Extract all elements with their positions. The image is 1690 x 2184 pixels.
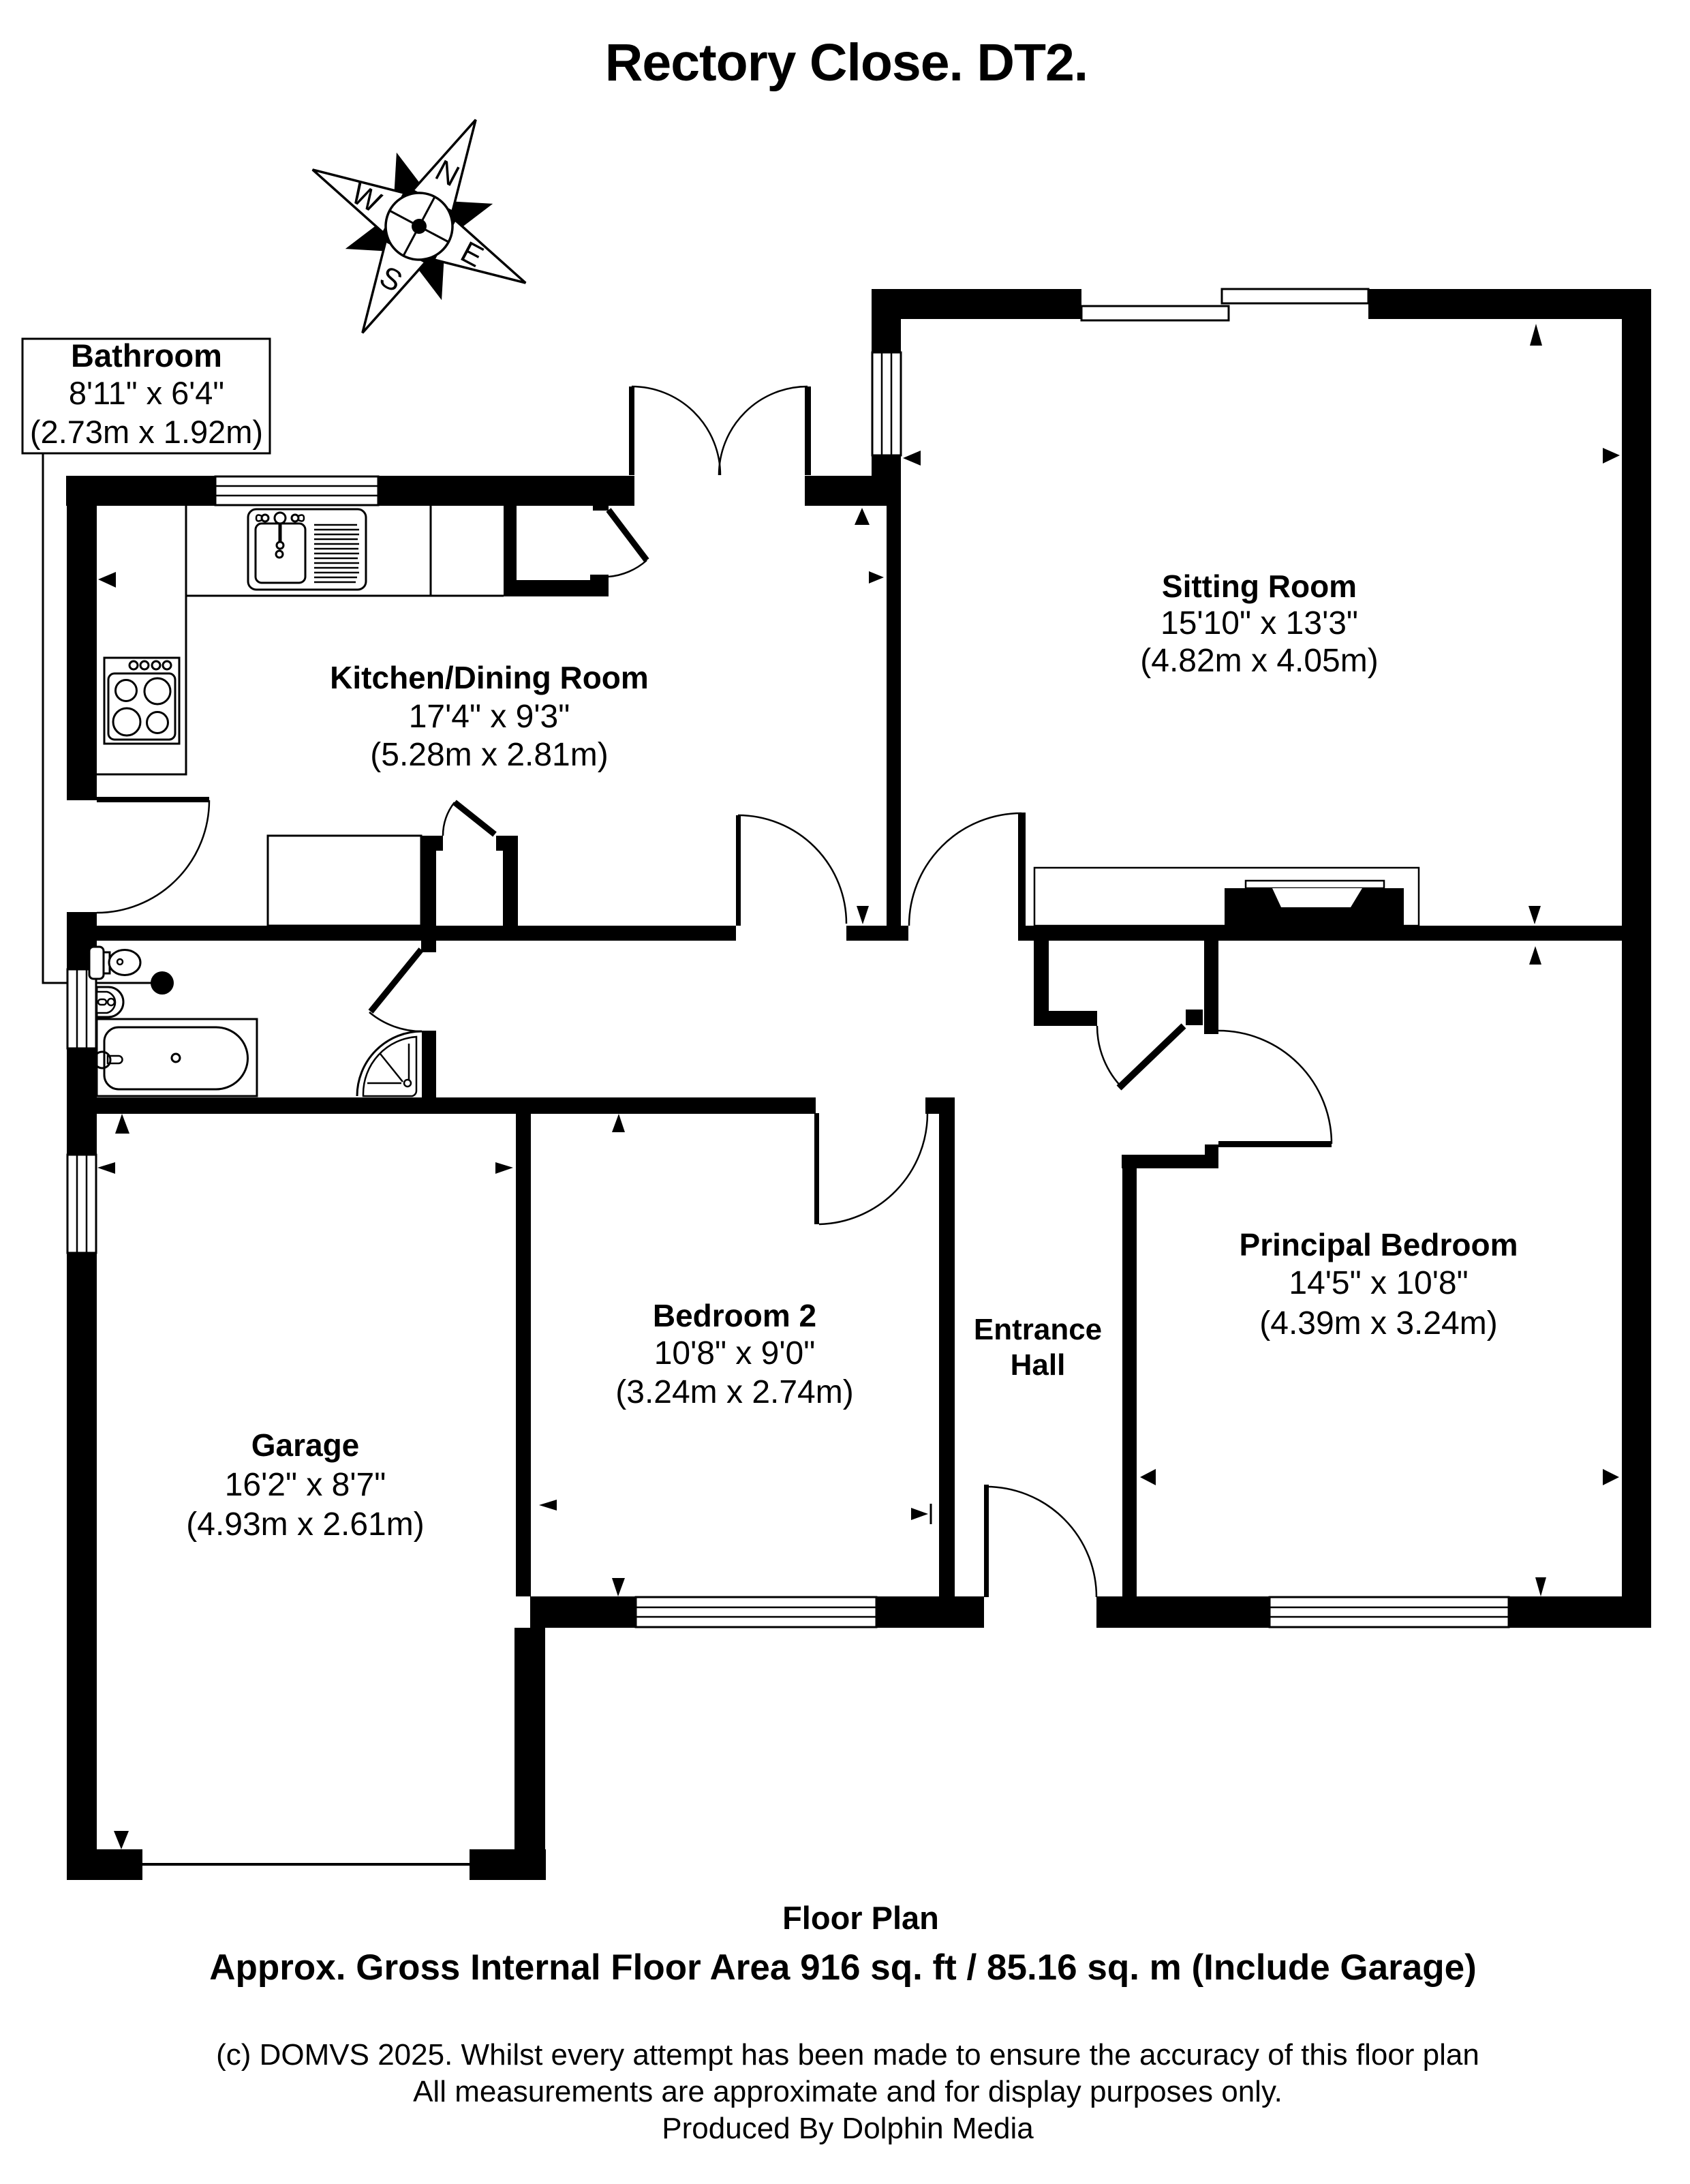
- svg-text:10'8" x 9'0": 10'8" x 9'0": [654, 1335, 816, 1371]
- svg-text:17'4" x 9'3": 17'4" x 9'3": [409, 699, 570, 735]
- svg-text:Bedroom 2: Bedroom 2: [653, 1298, 816, 1333]
- svg-text:15'10" x 13'3": 15'10" x 13'3": [1161, 605, 1358, 641]
- svg-text:(2.73m x 1.92m): (2.73m x 1.92m): [30, 414, 263, 450]
- svg-text:16'2" x 8'7": 16'2" x 8'7": [225, 1467, 386, 1503]
- svg-text:Floor Plan: Floor Plan: [782, 1900, 939, 1936]
- svg-text:(5.28m x 2.81m): (5.28m x 2.81m): [370, 737, 608, 773]
- svg-text:(c) DOMVS 2025. Whilst every a: (c) DOMVS 2025. Whilst every attempt has…: [216, 2038, 1479, 2072]
- svg-text:(4.82m x 4.05m): (4.82m x 4.05m): [1140, 643, 1378, 679]
- svg-text:Hall: Hall: [1011, 1348, 1066, 1382]
- svg-text:Kitchen/Dining Room: Kitchen/Dining Room: [330, 660, 649, 695]
- svg-text:(4.39m x 3.24m): (4.39m x 3.24m): [1259, 1305, 1497, 1341]
- svg-text:(3.24m x 2.74m): (3.24m x 2.74m): [615, 1374, 853, 1410]
- svg-text:Entrance: Entrance: [974, 1313, 1102, 1346]
- svg-text:14'5" x 10'8": 14'5" x 10'8": [1289, 1265, 1468, 1301]
- svg-text:Principal Bedroom: Principal Bedroom: [1240, 1227, 1518, 1262]
- svg-text:Garage: Garage: [251, 1427, 360, 1463]
- svg-text:Rectory Close. DT2.: Rectory Close. DT2.: [605, 33, 1088, 92]
- svg-text:Produced By Dolphin Media: Produced By Dolphin Media: [662, 2112, 1034, 2145]
- svg-text:Approx. Gross Internal Floor A: Approx. Gross Internal Floor Area 916 sq…: [209, 1947, 1476, 1988]
- svg-text:(4.93m x 2.61m): (4.93m x 2.61m): [186, 1506, 424, 1543]
- svg-text:All measurements are approxima: All measurements are approximate and for…: [413, 2075, 1282, 2108]
- svg-text:Sitting Room: Sitting Room: [1162, 568, 1357, 604]
- svg-text:Bathroom: Bathroom: [71, 337, 222, 374]
- svg-text:8'11" x 6'4": 8'11" x 6'4": [69, 375, 224, 411]
